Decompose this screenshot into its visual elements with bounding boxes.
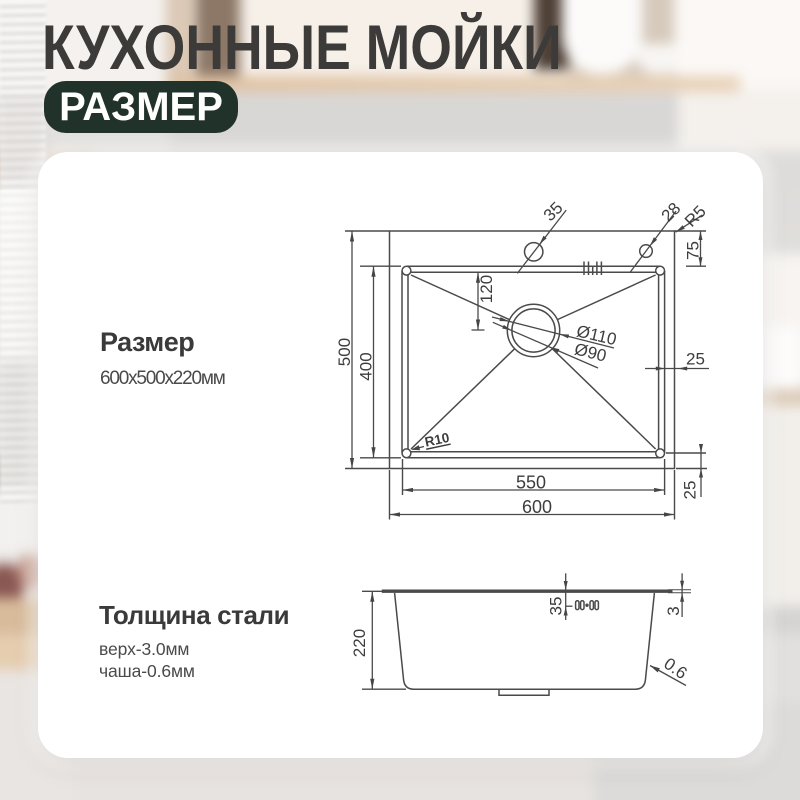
- svg-text:35: 35: [547, 597, 566, 616]
- svg-text:75: 75: [684, 241, 703, 260]
- svg-text:28: 28: [658, 199, 685, 226]
- svg-text:25: 25: [686, 350, 705, 369]
- svg-text:500: 500: [335, 338, 354, 366]
- svg-text:0.6: 0.6: [660, 654, 690, 683]
- svg-text:35: 35: [540, 198, 567, 225]
- svg-text:400: 400: [356, 352, 375, 380]
- svg-text:25: 25: [681, 481, 700, 500]
- svg-text:3: 3: [664, 606, 683, 615]
- svg-text:120: 120: [477, 275, 496, 303]
- svg-text:220: 220: [350, 629, 369, 657]
- svg-text:600: 600: [522, 497, 552, 517]
- svg-text:550: 550: [516, 472, 546, 492]
